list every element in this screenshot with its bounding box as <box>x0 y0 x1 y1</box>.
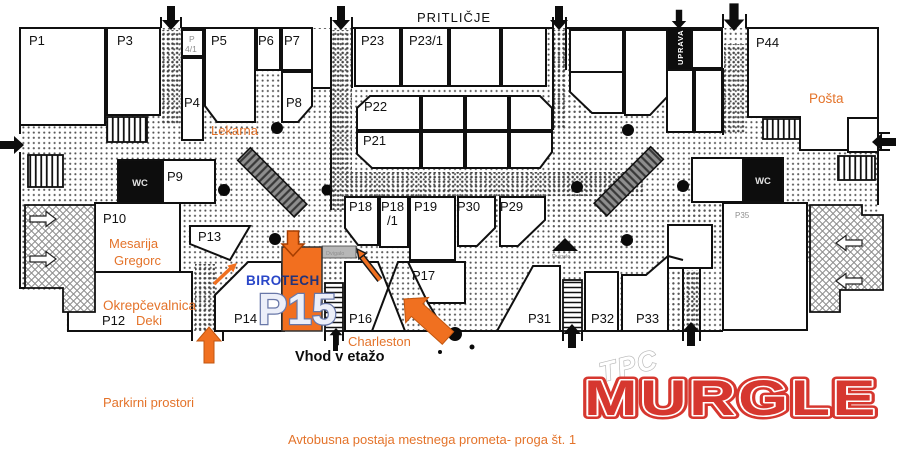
unit-label-p8: P8 <box>286 95 302 110</box>
route-arrow-up-big <box>197 327 221 363</box>
wc-left-label: WC <box>132 178 148 189</box>
room-c3 <box>450 28 500 86</box>
unit-label-p22: P22 <box>364 99 387 114</box>
tenant-label-deki: Deki <box>136 313 162 328</box>
logo: TPC MURGLE MURGLE <box>584 344 878 426</box>
floor-plan-page: PRITLIČJE P1 P3 P 4/1 P5 P6 P7 P23 P23/1… <box>0 0 900 470</box>
unit-label-p6: P6 <box>258 33 274 48</box>
bus-stop-label: Avtobusna postaja mestnega prometa- prog… <box>288 432 576 447</box>
room-re1 <box>667 70 693 132</box>
room-wc-neighbor <box>692 158 743 202</box>
room-c7 <box>466 96 508 130</box>
unit-label-p14: P14 <box>234 311 257 326</box>
unit-label-p10: P10 <box>103 211 126 226</box>
unit-label-p17: P17 <box>412 268 435 283</box>
dvigalo-center-label: Dvigalo <box>552 254 570 260</box>
unit-label-p30: P30 <box>457 199 480 214</box>
parking-label: Parkirni prostori <box>103 395 194 410</box>
room-c11 <box>466 132 508 168</box>
unit-label-p18-1a: P18 <box>381 199 404 214</box>
unit-label-p9: P9 <box>167 169 183 184</box>
unit-label-p1: P1 <box>29 33 45 48</box>
unit-label-p4: P4 <box>184 95 200 110</box>
floor-plan-svg: PRITLIČJE P1 P3 P 4/1 P5 P6 P7 P23 P23/1… <box>0 0 900 470</box>
entrance-label: Vhod v etažo <box>295 349 385 365</box>
unit-label-p35: P35 <box>735 211 750 220</box>
unit-label-p12: P12 <box>102 313 125 328</box>
unit-label-p23: P23 <box>361 33 384 48</box>
tenant-label-lekarna: Lekarna <box>211 123 259 138</box>
room-ra <box>570 30 623 72</box>
unit-label-p4-1b: 4/1 <box>185 44 197 54</box>
unit-label-p4-1a: P <box>189 34 195 44</box>
room-c4 <box>502 28 546 86</box>
unit-label-p16: P16 <box>349 311 372 326</box>
room-c8 <box>510 96 552 130</box>
entrance-arrow-uprava <box>672 10 686 29</box>
uprava-label: UPRAVA <box>676 30 685 65</box>
unit-label-p31: P31 <box>528 311 551 326</box>
entrance-arrow-top-4 <box>724 3 745 31</box>
unit-label-p18: P18 <box>349 199 372 214</box>
unit-label-p18-1b: /1 <box>387 213 398 228</box>
room-p3 <box>107 28 160 115</box>
unit-label-p19: P19 <box>414 199 437 214</box>
tenant-label-charleston: Charleston <box>348 334 411 349</box>
room-rb <box>625 30 667 115</box>
tenant-label-mesarija-1: Mesarija <box>109 236 159 251</box>
room-c6 <box>422 96 464 130</box>
room-p35 <box>723 203 807 330</box>
tenant-label-posta: Pošta <box>809 91 844 106</box>
terrace-right <box>810 205 883 312</box>
room-se <box>668 225 712 268</box>
unit-label-p3: P3 <box>117 33 133 48</box>
entrance-arrow-top-1 <box>162 6 180 30</box>
unit-label-p13: P13 <box>198 229 221 244</box>
floor-title: PRITLIČJE <box>417 10 491 25</box>
room-re2 <box>695 70 722 132</box>
dvigalo-left-label: Dvigalo <box>326 251 344 257</box>
unit-label-p33: P33 <box>636 311 659 326</box>
unit-label-p5: P5 <box>211 33 227 48</box>
entrance-arrow-top-2 <box>332 6 350 30</box>
unit-label-p21: P21 <box>363 133 386 148</box>
logo-murgle: MURGLE <box>584 370 878 426</box>
wc-right-label: WC <box>755 176 771 187</box>
tenant-label-okrepcevalnica: Okrepčevalnica <box>103 298 197 313</box>
unit-label-p23-1: P23/1 <box>409 33 443 48</box>
room-rc <box>692 30 722 68</box>
room-edge <box>848 118 878 152</box>
unit-label-p29: P29 <box>500 199 523 214</box>
room-c10 <box>422 132 464 168</box>
unit-label-p15: P15 <box>258 285 336 334</box>
unit-label-p32: P32 <box>591 311 614 326</box>
unit-label-p7: P7 <box>284 33 300 48</box>
tenant-label-mesarija-2: Gregorc <box>114 253 161 268</box>
unit-label-p44: P44 <box>756 35 779 50</box>
